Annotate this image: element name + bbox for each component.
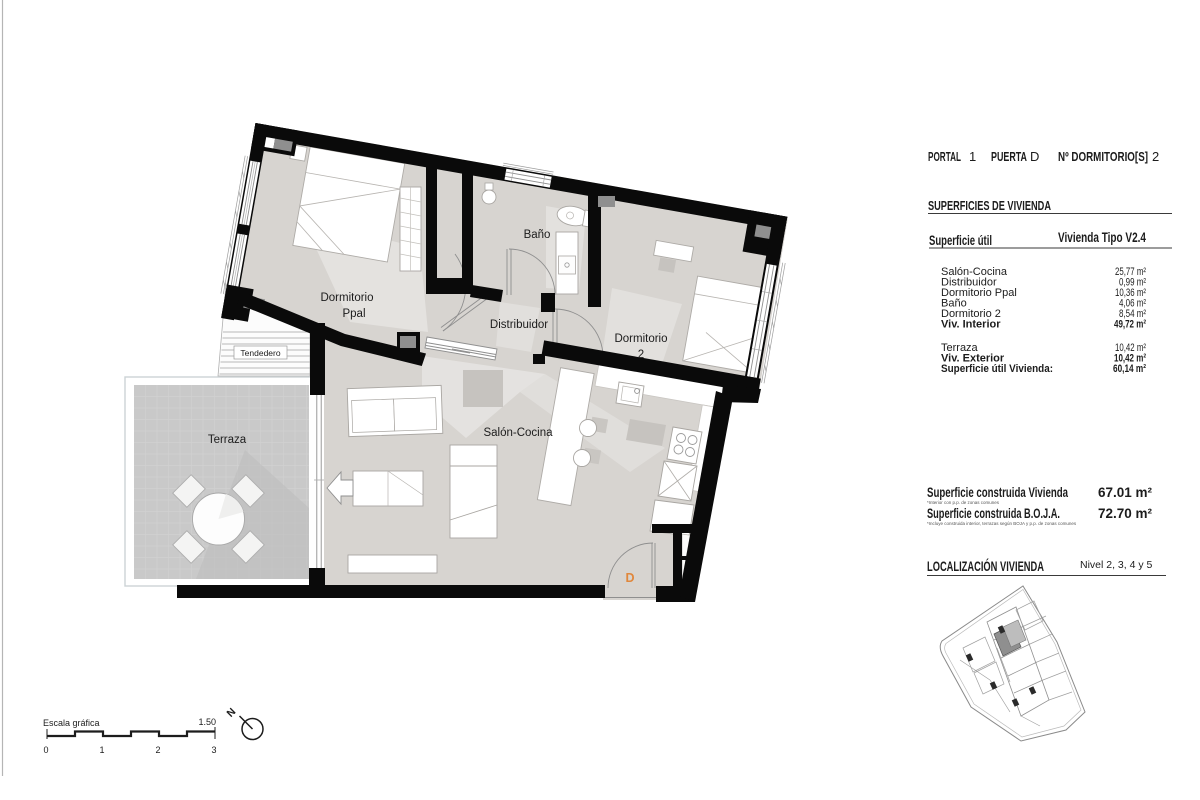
svg-text:Superficie útil: Superficie útil xyxy=(929,233,992,248)
svg-text:Viv. Interior: Viv. Interior xyxy=(941,319,1001,331)
svg-text:67.01 m²: 67.01 m² xyxy=(1098,485,1153,500)
svg-text:Ppal: Ppal xyxy=(342,308,365,320)
svg-text:D: D xyxy=(625,571,634,585)
svg-text:Dormitorio: Dormitorio xyxy=(320,292,373,304)
svg-text:1: 1 xyxy=(969,149,976,164)
svg-text:PUERTA: PUERTA xyxy=(991,149,1027,164)
svg-text:49,72 m²: 49,72 m² xyxy=(1114,319,1146,331)
svg-text:Baño: Baño xyxy=(524,229,551,241)
svg-text:Superficie útil Vivienda:: Superficie útil Vivienda: xyxy=(941,363,1053,375)
svg-text:*Incluye construida interior,: *Incluye construida interior, terrazas s… xyxy=(927,521,1077,526)
svg-text:2: 2 xyxy=(1152,149,1159,164)
svg-text:72.70 m²: 72.70 m² xyxy=(1098,506,1153,521)
svg-text:SUPERFICIES DE VIVIENDA: SUPERFICIES DE VIVIENDA xyxy=(928,198,1051,213)
svg-text:Superficie construida B.O.J.A.: Superficie construida B.O.J.A. xyxy=(927,505,1060,521)
svg-text:LOCALIZACIÓN VIVIENDA: LOCALIZACIÓN VIVIENDA xyxy=(927,559,1044,574)
svg-text:2: 2 xyxy=(155,745,160,755)
svg-text:Salón-Cocina: Salón-Cocina xyxy=(483,427,553,439)
svg-text:Nivel 2, 3, 4 y 5: Nivel 2, 3, 4 y 5 xyxy=(1080,559,1153,571)
svg-text:Terraza: Terraza xyxy=(208,434,247,446)
svg-text:Nº DORMITORIO[S]: Nº DORMITORIO[S] xyxy=(1058,149,1148,164)
svg-text:Escala gráfica: Escala gráfica xyxy=(43,718,100,728)
svg-text:Tendedero: Tendedero xyxy=(240,348,280,358)
svg-text:Superficie construida Vivienda: Superficie construida Vivienda xyxy=(927,484,1068,500)
svg-text:Vivienda Tipo V2.4: Vivienda Tipo V2.4 xyxy=(1058,230,1146,245)
svg-text:PORTAL: PORTAL xyxy=(928,149,961,164)
svg-text:Dormitorio: Dormitorio xyxy=(614,333,667,345)
svg-text:60,14 m²: 60,14 m² xyxy=(1113,363,1146,375)
svg-text:1.50: 1.50 xyxy=(198,717,216,727)
svg-text:2: 2 xyxy=(638,349,644,361)
svg-text:Distribuidor: Distribuidor xyxy=(490,319,548,331)
svg-text:D: D xyxy=(1030,149,1039,164)
svg-text:1: 1 xyxy=(99,745,104,755)
svg-text:0: 0 xyxy=(43,745,48,755)
svg-text:3: 3 xyxy=(211,745,216,755)
